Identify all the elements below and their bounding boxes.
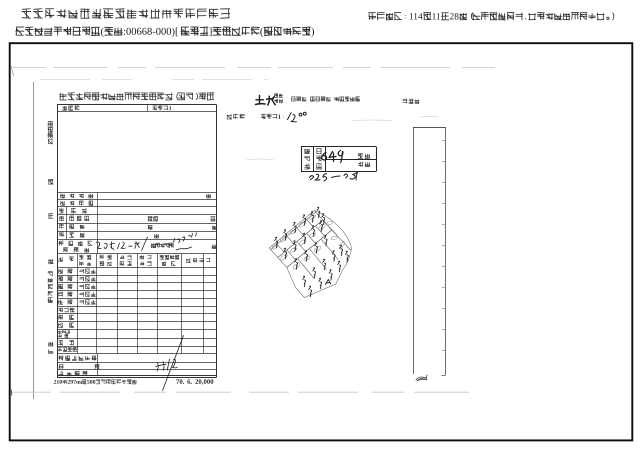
svg-text:210: 210 bbox=[53, 380, 62, 386]
svg-text:114: 114 bbox=[409, 12, 423, 22]
svg-text::00668-000)[: :00668-000)[ bbox=[123, 27, 179, 38]
svg-text:70.: 70. bbox=[176, 379, 185, 386]
svg-text:20,000: 20,000 bbox=[195, 379, 214, 386]
svg-text:1: 1 bbox=[278, 114, 281, 121]
svg-text:1: 1 bbox=[169, 106, 172, 112]
svg-text:): ) bbox=[311, 27, 315, 38]
svg-text:297mm: 297mm bbox=[67, 380, 85, 386]
svg-text:]: ] bbox=[209, 27, 213, 38]
svg-text:(: ( bbox=[100, 27, 104, 38]
svg-text:(: ( bbox=[260, 27, 264, 38]
svg-text:11: 11 bbox=[432, 12, 441, 22]
svg-text:500: 500 bbox=[87, 380, 96, 386]
svg-text:28: 28 bbox=[450, 12, 460, 22]
svg-text:6.: 6. bbox=[187, 379, 192, 386]
